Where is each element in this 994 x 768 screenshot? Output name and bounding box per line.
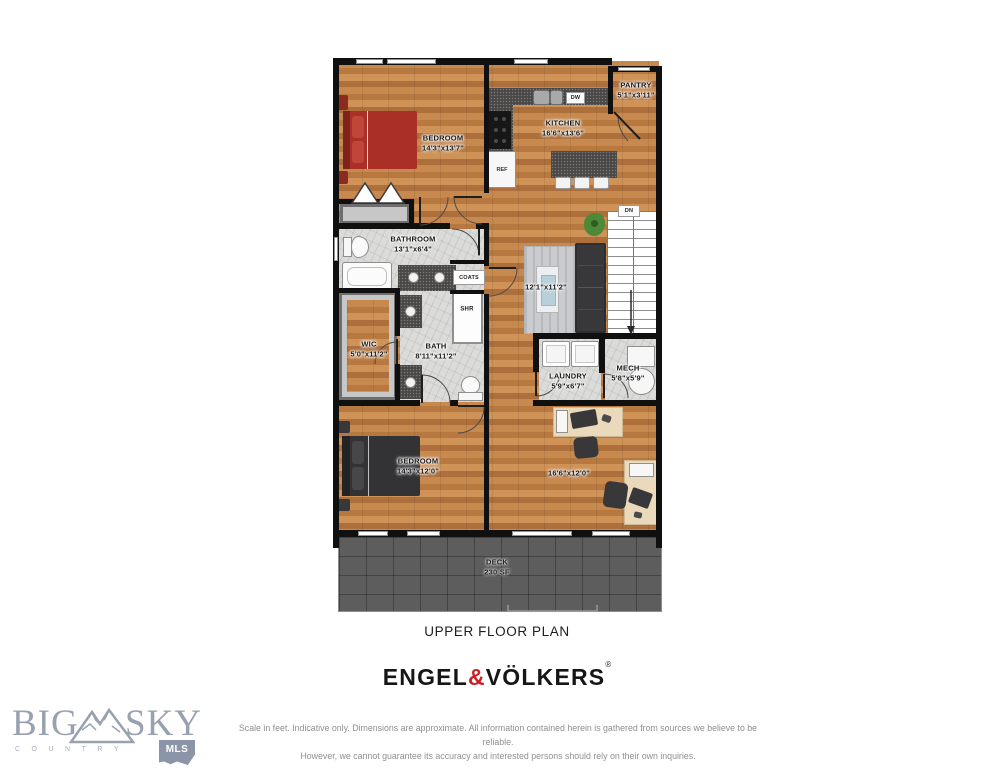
window-kitchen xyxy=(514,59,548,64)
stove-burners xyxy=(494,117,498,121)
window-bed1-a xyxy=(356,59,383,64)
mls-badge: MLS xyxy=(159,740,195,765)
wall-laundry-bottom xyxy=(533,400,658,406)
dn-label: DN xyxy=(625,208,633,214)
office-chair-1 xyxy=(573,436,599,459)
pantry-dims: 5'1"x3'11" xyxy=(617,90,654,100)
window-flex-a xyxy=(512,531,572,536)
desk-pad-2 xyxy=(629,463,654,477)
wall-pantry-left xyxy=(608,66,613,114)
wic-dims: 5'0"x11'2" xyxy=(350,349,387,359)
deck-stub-left xyxy=(333,537,339,548)
bath-sink-1 xyxy=(405,306,416,317)
island-stool-3 xyxy=(593,177,609,189)
stove xyxy=(489,111,511,149)
label-mech: MECH 5'8"x5'9" xyxy=(611,364,644,383)
label-shr: SHR xyxy=(460,305,473,315)
brand-part2: VÖLKERS xyxy=(486,664,606,690)
bathtub xyxy=(342,262,392,291)
wall-v1a xyxy=(484,62,489,193)
kitchen-sink xyxy=(533,90,550,105)
mls-logo: BIG SKY COUNTRY MLS xyxy=(12,700,207,762)
desk-shelf-1 xyxy=(556,410,568,433)
kitchen-dims: 16'6"x13'6" xyxy=(542,128,584,138)
window-bed2-b xyxy=(407,531,440,536)
living-dims: 12'1"x11'2" xyxy=(525,282,567,292)
label-laundry: LAUNDRY 5'9"x6'7" xyxy=(549,372,587,391)
dishwasher: DW xyxy=(566,92,585,104)
bedroom1-closet xyxy=(340,204,410,224)
office-chair-2 xyxy=(602,481,628,510)
kitchen-island xyxy=(551,151,617,178)
wall-laundry-top xyxy=(533,333,658,339)
bath-sink-2 xyxy=(405,377,416,388)
disclaimer: Scale in feet. Indicative only. Dimensio… xyxy=(229,721,767,763)
wall-wic-bath xyxy=(395,288,400,336)
wic-name: WIC xyxy=(350,340,387,350)
label-living: 12'1"x11'2" xyxy=(525,282,567,292)
vanity-sink-1 xyxy=(408,272,419,283)
island-stool-1 xyxy=(555,177,571,189)
wall-v1c xyxy=(484,294,489,406)
wall-bathroom-bottom xyxy=(337,288,400,293)
shr-label: SHR xyxy=(460,305,473,315)
logo-word-sky: SKY xyxy=(125,702,202,745)
bedroom1-name: BEDROOM xyxy=(422,134,464,144)
wall-bathroom-top xyxy=(337,223,450,229)
window-bed1-b xyxy=(387,59,436,64)
window-pantry xyxy=(618,67,650,71)
disclaimer-line2: However, we cannot guarantee its accurac… xyxy=(229,749,767,763)
dw-label: DW xyxy=(571,95,581,101)
wall-left xyxy=(333,58,339,537)
label-bath: BATH 8'11"x11'2" xyxy=(415,342,456,361)
plant-core xyxy=(591,220,598,227)
refrigerator: REF xyxy=(488,151,516,188)
stairs-dn-tag: DN xyxy=(618,205,640,217)
kitchen-sink-2 xyxy=(550,90,563,105)
plan-title: UPPER FLOOR PLAN xyxy=(0,624,994,639)
label-bathroom: BATHROOM 13'1"x6'4" xyxy=(390,235,435,254)
coats-closet: COATS xyxy=(453,270,485,285)
wall-coats-top xyxy=(450,260,484,264)
shower xyxy=(452,292,483,344)
pantry-name: PANTRY xyxy=(617,81,654,91)
window-bathroom xyxy=(334,237,338,261)
bedroom2-dims: 14'3"x12'0" xyxy=(397,466,439,476)
mech-dims: 5'8"x5'9" xyxy=(611,373,644,383)
brand-ampersand: & xyxy=(468,664,486,690)
label-wic: WIC 5'0"x11'2" xyxy=(350,340,387,359)
dryer xyxy=(571,341,599,367)
coats-label: COATS xyxy=(459,275,479,281)
label-bedroom2: BEDROOM 14'3"x12'0" xyxy=(397,457,439,476)
wall-v1b xyxy=(484,223,489,266)
washer xyxy=(542,341,570,367)
label-flex: 16'6"x12'0" xyxy=(548,468,590,478)
mech-name: MECH xyxy=(611,364,644,374)
window-bed2-a xyxy=(358,531,388,536)
brand-registered-mark: ® xyxy=(605,660,611,669)
kitchen-name: KITCHEN xyxy=(542,119,584,129)
wall-bathroom-top-stub xyxy=(476,223,484,229)
label-bedroom1: BEDROOM 14'3"x13'7" xyxy=(422,134,464,153)
vanity-sink-2 xyxy=(434,272,445,283)
laundry-name: LAUNDRY xyxy=(549,372,587,382)
wall-laundry-mech xyxy=(599,339,605,373)
bedroom1-dims: 14'3"x13'7" xyxy=(422,143,464,153)
wall-laundry-left xyxy=(533,339,539,372)
deck-stub-right xyxy=(656,537,662,548)
bathroom-dims: 13'1"x6'4" xyxy=(390,244,435,254)
laundry-dims: 5'9"x6'7" xyxy=(549,381,587,391)
label-pantry: PANTRY 5'1"x3'11" xyxy=(617,81,654,100)
bath-dims: 8'11"x11'2" xyxy=(415,351,456,361)
disclaimer-line1: Scale in feet. Indicative only. Dimensio… xyxy=(229,721,767,749)
brand-part1: ENGEL xyxy=(383,664,468,690)
window-flex-b xyxy=(592,531,630,536)
wall-right xyxy=(656,66,662,537)
ref-label: REF xyxy=(497,167,508,173)
bathroom-name: BATHROOM xyxy=(390,235,435,245)
label-deck: DECK 230 SF xyxy=(484,558,509,577)
bath-name: BATH xyxy=(415,342,456,352)
sofa xyxy=(575,243,606,333)
label-kitchen: KITCHEN 16'6"x13'6" xyxy=(542,119,584,138)
bedroom2-name: BEDROOM xyxy=(397,457,439,467)
floor-plan-page: DW REF xyxy=(0,0,994,768)
wall-suite-bottom xyxy=(337,400,420,406)
flex-dims: 16'6"x12'0" xyxy=(548,468,590,478)
wall-suite-bottom-stub xyxy=(450,400,458,406)
wall-bed1-bottom xyxy=(337,199,414,204)
wall-coats-bottom xyxy=(450,290,484,294)
toilet-tank-2 xyxy=(458,392,483,401)
staircase xyxy=(607,212,657,339)
logo-country: COUNTRY xyxy=(15,746,130,753)
deck-name: DECK xyxy=(484,558,509,568)
bedroom1-bed xyxy=(343,111,417,169)
deck-dims: 230 SF xyxy=(484,567,509,577)
island-stool-2 xyxy=(574,177,590,189)
bathroom-vanity xyxy=(398,265,456,291)
wall-v1d xyxy=(484,400,489,532)
brokerage-wordmark: ENGEL&VÖLKERS® xyxy=(0,660,994,691)
wall-wic-bath-2 xyxy=(395,364,400,402)
